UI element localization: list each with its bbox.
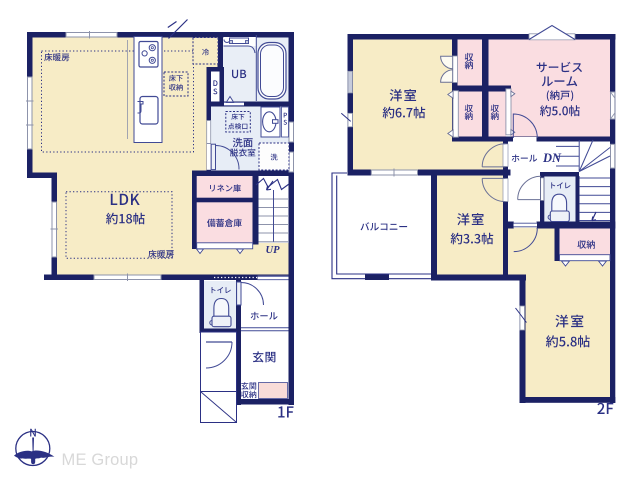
svg-text:UP: UP xyxy=(266,245,281,256)
svg-text:ME Group: ME Group xyxy=(62,451,139,469)
svg-text:DN: DN xyxy=(542,151,562,165)
